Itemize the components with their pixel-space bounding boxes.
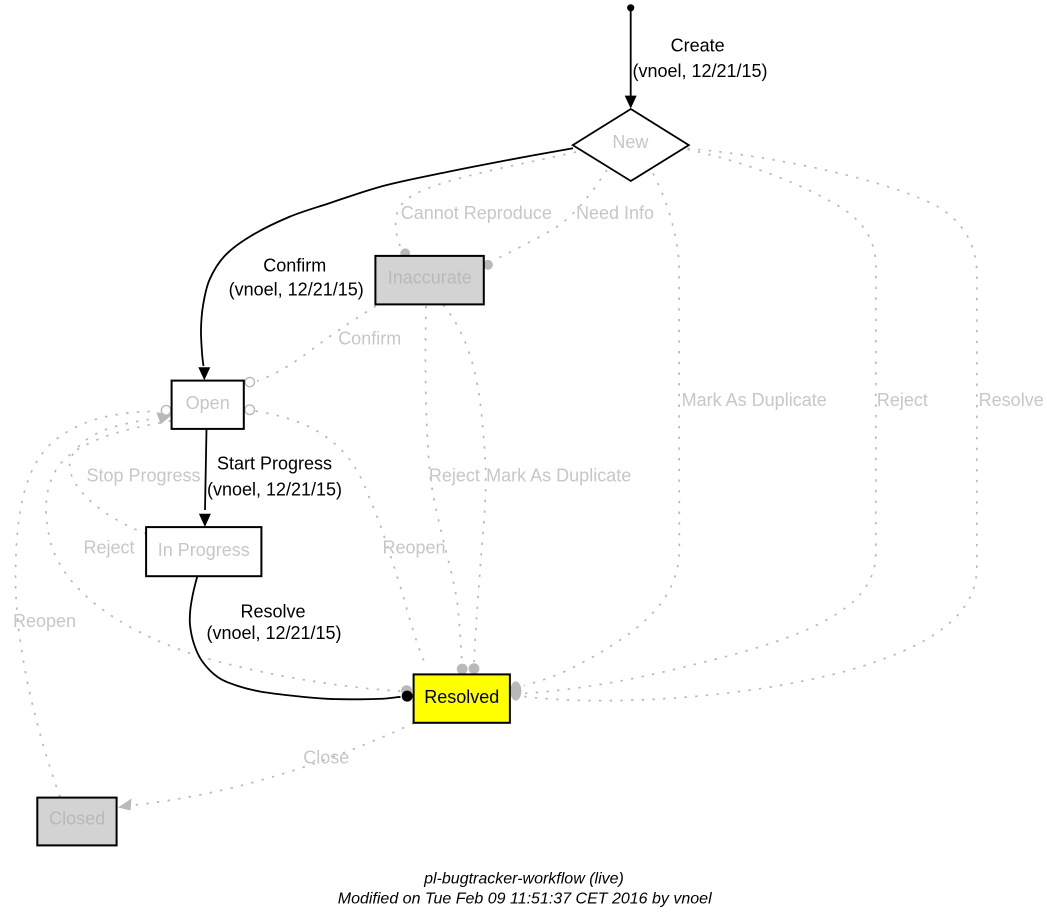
svg-text:Create: Create <box>671 36 725 56</box>
svg-text:Reopen: Reopen <box>382 538 445 558</box>
svg-text:Confirm: Confirm <box>263 256 326 276</box>
svg-text:Mark As Duplicate: Mark As Duplicate <box>682 390 827 410</box>
svg-text:New: New <box>612 132 649 152</box>
svg-text:Reject: Reject <box>877 390 928 410</box>
svg-text:Reject: Reject <box>429 466 480 486</box>
svg-text:(vnoel, 12/21/15): (vnoel, 12/21/15) <box>632 61 767 81</box>
svg-text:Need Info: Need Info <box>576 203 654 223</box>
svg-text:(vnoel, 12/21/15): (vnoel, 12/21/15) <box>207 480 342 500</box>
svg-text:Resolved: Resolved <box>424 687 499 707</box>
svg-text:Cannot Reproduce: Cannot Reproduce <box>401 203 552 223</box>
svg-text:(vnoel, 12/21/15): (vnoel, 12/21/15) <box>229 280 364 300</box>
svg-text:Resolve: Resolve <box>979 390 1044 410</box>
svg-text:Start Progress: Start Progress <box>217 454 332 474</box>
svg-text:(vnoel, 12/21/15): (vnoel, 12/21/15) <box>206 623 341 643</box>
svg-text:Inaccurate: Inaccurate <box>388 268 472 288</box>
svg-text:Reject: Reject <box>83 538 134 558</box>
svg-text:In Progress: In Progress <box>158 540 250 560</box>
svg-text:Open: Open <box>186 393 230 413</box>
svg-text:Closed: Closed <box>49 809 105 829</box>
svg-text:Modified on Tue Feb 09 11:51:3: Modified on Tue Feb 09 11:51:37 CET 2016… <box>338 891 712 908</box>
svg-text:Confirm: Confirm <box>338 329 401 349</box>
svg-text:Reopen: Reopen <box>13 611 76 631</box>
svg-text:pl-bugtracker-workflow (live): pl-bugtracker-workflow (live) <box>423 871 624 888</box>
svg-text:Stop Progress: Stop Progress <box>86 466 200 486</box>
svg-text:Resolve: Resolve <box>240 602 305 622</box>
svg-text:Mark As Duplicate: Mark As Duplicate <box>486 466 631 486</box>
svg-text:Close: Close <box>303 748 349 768</box>
